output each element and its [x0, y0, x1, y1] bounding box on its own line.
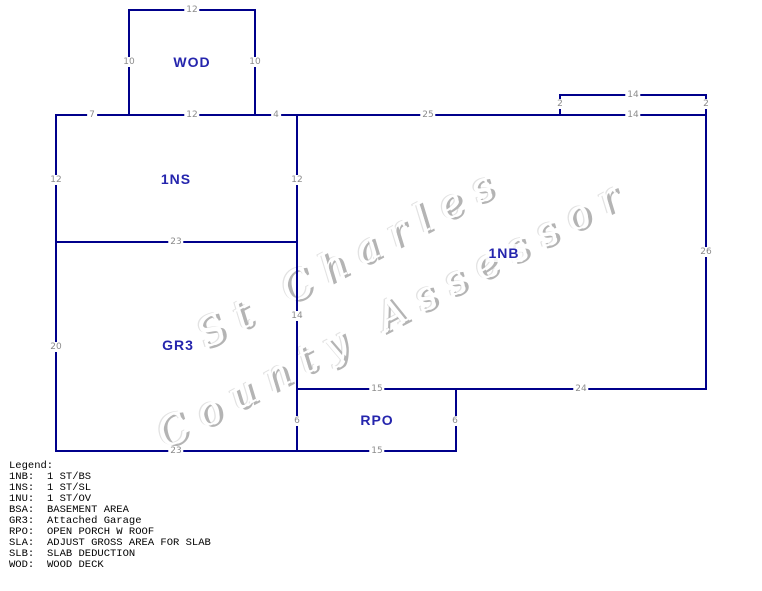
area-label-wod: WOD [170, 53, 213, 71]
dimension-label: 2 [555, 99, 565, 109]
dimension-label: 23 [168, 237, 183, 247]
dimension-label: 10 [121, 57, 136, 67]
area-label-rpo: RPO [357, 411, 396, 429]
sketch-page: St Charles County Assessor 1210107124251… [0, 0, 762, 591]
dimension-label: 12 [184, 110, 199, 120]
area-label-gr3: GR3 [159, 336, 197, 354]
dimension-label: 25 [420, 110, 435, 120]
legend-desc: WOOD DECK [47, 559, 104, 571]
wall-main-top [55, 114, 707, 116]
legend-title: Legend: [9, 461, 211, 472]
dimension-label: 6 [292, 416, 302, 426]
wall-outer-bottom [55, 450, 457, 452]
legend-entry: 1NB:1 ST/BS [9, 472, 211, 483]
dimension-label: 6 [450, 416, 460, 426]
wall-right-edge [705, 94, 707, 390]
dimension-label: 23 [168, 446, 183, 456]
legend-code: WOD: [9, 560, 47, 571]
dimension-label: 4 [271, 110, 281, 120]
dimension-label: 2 [701, 99, 711, 109]
legend: Legend: 1NB:1 ST/BS1NS:1 ST/SL1NU:1 ST/O… [9, 461, 211, 571]
wall-left-edge [55, 114, 57, 452]
wall-center-divider [296, 114, 298, 452]
dimension-label: 14 [625, 110, 640, 120]
watermark-line-1: St Charles [190, 159, 511, 355]
dimension-label: 20 [48, 342, 63, 352]
legend-entry: WOD:WOOD DECK [9, 560, 211, 571]
dimension-label: 26 [698, 247, 713, 257]
dimension-label: 15 [369, 384, 384, 394]
dimension-label: 12 [289, 175, 304, 185]
dimension-label: 14 [289, 311, 304, 321]
dimension-label: 10 [247, 57, 262, 67]
dimension-label: 12 [184, 5, 199, 15]
legend-entries: 1NB:1 ST/BS1NS:1 ST/SL1NU:1 ST/OVBSA:BAS… [9, 472, 211, 571]
dimension-label: 15 [369, 446, 384, 456]
dimension-label: 14 [625, 90, 640, 100]
dimension-label: 12 [48, 175, 63, 185]
dimension-label: 7 [87, 110, 97, 120]
wall-1nb-bottom [296, 388, 707, 390]
dimension-label: 24 [573, 384, 588, 394]
area-label-1ns: 1NS [158, 170, 194, 188]
legend-entry: 1NS:1 ST/SL [9, 483, 211, 494]
area-label-1nb: 1NB [485, 244, 522, 262]
legend-entry: SLB:SLAB DEDUCTION [9, 549, 211, 560]
